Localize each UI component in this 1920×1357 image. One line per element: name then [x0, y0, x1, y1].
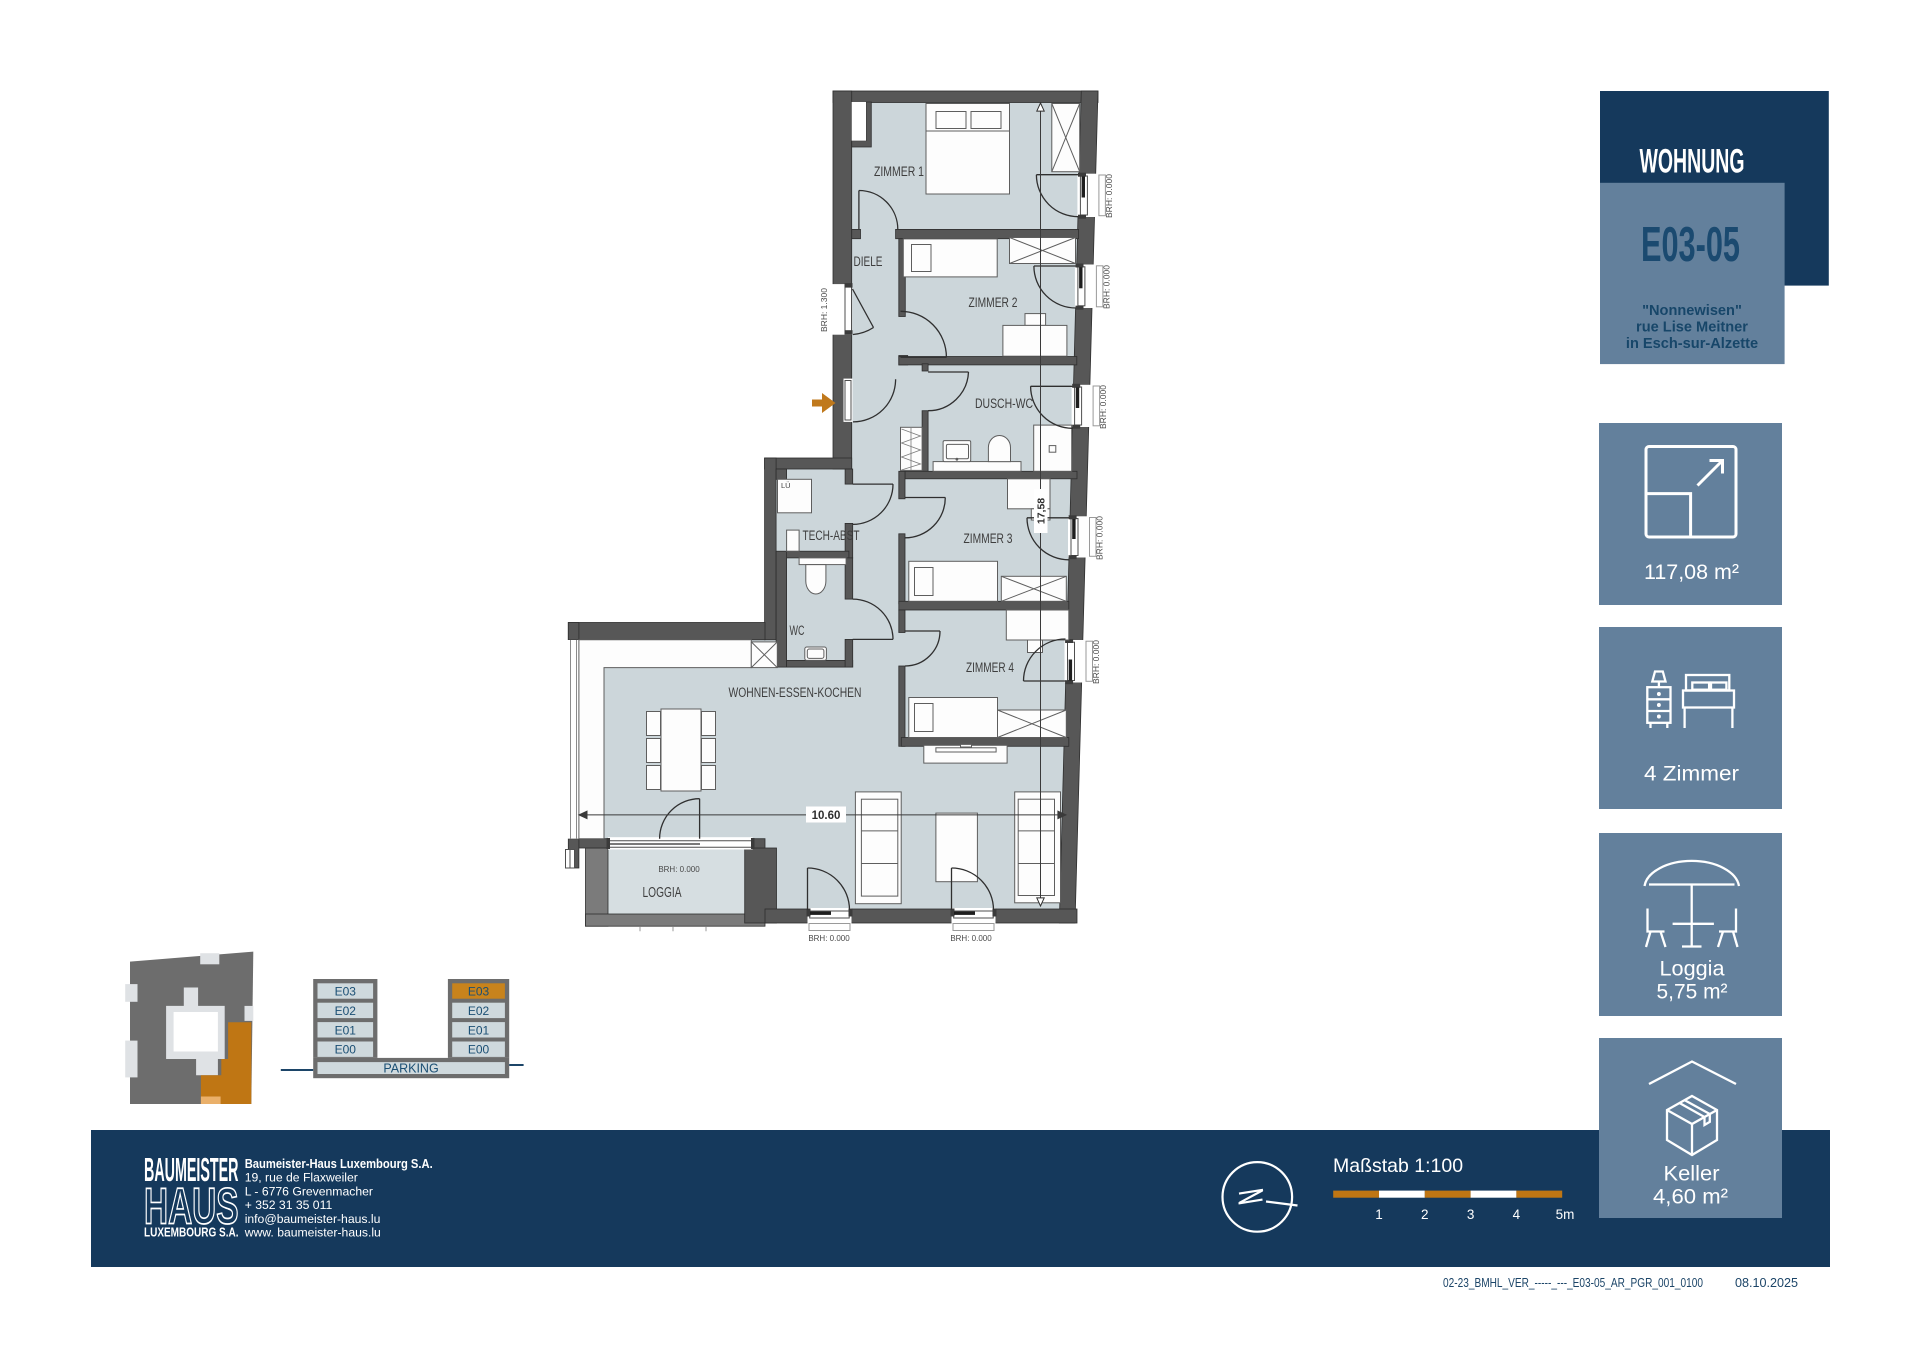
- svg-text:4 Zimmer: 4 Zimmer: [1644, 763, 1739, 786]
- svg-text:LOGGIA: LOGGIA: [643, 884, 682, 901]
- svg-text:117,08 m²: 117,08 m²: [1644, 561, 1739, 584]
- svg-text:rue Lise Meitner: rue Lise Meitner: [1636, 320, 1748, 336]
- svg-text:BRH: 1.300: BRH: 1.300: [819, 288, 829, 332]
- svg-text:E03: E03: [468, 985, 490, 999]
- svg-text:WOHNUNG: WOHNUNG: [1640, 143, 1745, 181]
- svg-text:02-23_BMHL_VER_-----_---_E03-0: 02-23_BMHL_VER_-----_---_E03-05_AR_PGR_0…: [1443, 1276, 1703, 1290]
- svg-text:Loggia: Loggia: [1660, 958, 1725, 981]
- svg-text:4,60 m²: 4,60 m²: [1653, 1186, 1728, 1209]
- svg-text:5,75 m²: 5,75 m²: [1657, 981, 1728, 1004]
- svg-text:LÜ: LÜ: [781, 481, 791, 490]
- svg-text:Baumeister-Haus Luxembourg S.A: Baumeister-Haus Luxembourg S.A.: [245, 1157, 433, 1171]
- svg-text:3: 3: [1467, 1207, 1475, 1222]
- svg-text:in Esch-sur-Alzette: in Esch-sur-Alzette: [1626, 336, 1758, 352]
- svg-text:WC: WC: [790, 623, 805, 638]
- svg-text:PARKING: PARKING: [383, 1062, 438, 1076]
- svg-text:E01: E01: [335, 1023, 357, 1037]
- svg-text:ZIMMER 1: ZIMMER 1: [874, 164, 924, 179]
- svg-text:E03: E03: [335, 985, 357, 999]
- svg-text:Keller: Keller: [1664, 1163, 1720, 1186]
- svg-text:BRH: 0.000: BRH: 0.000: [658, 865, 700, 874]
- svg-text:BRH: 0.000: BRH: 0.000: [1091, 640, 1101, 684]
- svg-text:2: 2: [1421, 1207, 1429, 1222]
- svg-text:DUSCH-WC: DUSCH-WC: [975, 396, 1033, 411]
- svg-text:E02: E02: [468, 1004, 490, 1018]
- svg-text:4: 4: [1513, 1207, 1521, 1222]
- svg-text:E00: E00: [335, 1043, 357, 1057]
- svg-text:Maßstab 1:100: Maßstab 1:100: [1333, 1155, 1463, 1177]
- svg-text:WOHNEN-ESSEN-KOCHEN: WOHNEN-ESSEN-KOCHEN: [729, 685, 862, 700]
- svg-text:L - 6776 Grevenmacher: L - 6776 Grevenmacher: [245, 1184, 373, 1198]
- svg-text:BRH: 0.000: BRH: 0.000: [1104, 174, 1114, 218]
- svg-text:E01: E01: [468, 1023, 490, 1037]
- svg-text:www. baumeister-haus.lu: www. baumeister-haus.lu: [244, 1226, 381, 1240]
- svg-text:BRH: 0.000: BRH: 0.000: [950, 934, 992, 943]
- svg-text:DIELE: DIELE: [854, 254, 883, 269]
- svg-text:BRH: 0.000: BRH: 0.000: [1095, 516, 1105, 560]
- svg-text:BRH: 0.000: BRH: 0.000: [1102, 265, 1112, 309]
- svg-text:BRH: 0.000: BRH: 0.000: [808, 934, 850, 943]
- svg-text:ZIMMER 4: ZIMMER 4: [966, 660, 1014, 675]
- svg-text:"Nonnewisen": "Nonnewisen": [1642, 303, 1742, 319]
- svg-text:TECH-ABST: TECH-ABST: [803, 528, 860, 543]
- svg-text:E03-05: E03-05: [1641, 218, 1740, 272]
- svg-text:5m: 5m: [1556, 1207, 1575, 1222]
- svg-text:ZIMMER 2: ZIMMER 2: [969, 295, 1018, 310]
- svg-text:1: 1: [1375, 1207, 1383, 1222]
- svg-text:10.60: 10.60: [812, 810, 841, 822]
- svg-text:17,58: 17,58: [1035, 498, 1047, 524]
- svg-text:ZIMMER 3: ZIMMER 3: [964, 531, 1013, 546]
- svg-text:BRH: 0.000: BRH: 0.000: [1098, 385, 1108, 429]
- svg-text:19, rue de Flaxweiler: 19, rue de Flaxweiler: [245, 1171, 358, 1185]
- svg-text:LUXEMBOURG S.A.: LUXEMBOURG S.A.: [144, 1225, 239, 1240]
- svg-text:info@baumeister-haus.lu: info@baumeister-haus.lu: [245, 1212, 381, 1226]
- svg-text:08.10.2025: 08.10.2025: [1735, 1276, 1798, 1290]
- svg-text:+ 352 31 35 011: + 352 31 35 011: [245, 1198, 333, 1212]
- svg-text:E02: E02: [335, 1004, 357, 1018]
- svg-text:E00: E00: [468, 1043, 490, 1057]
